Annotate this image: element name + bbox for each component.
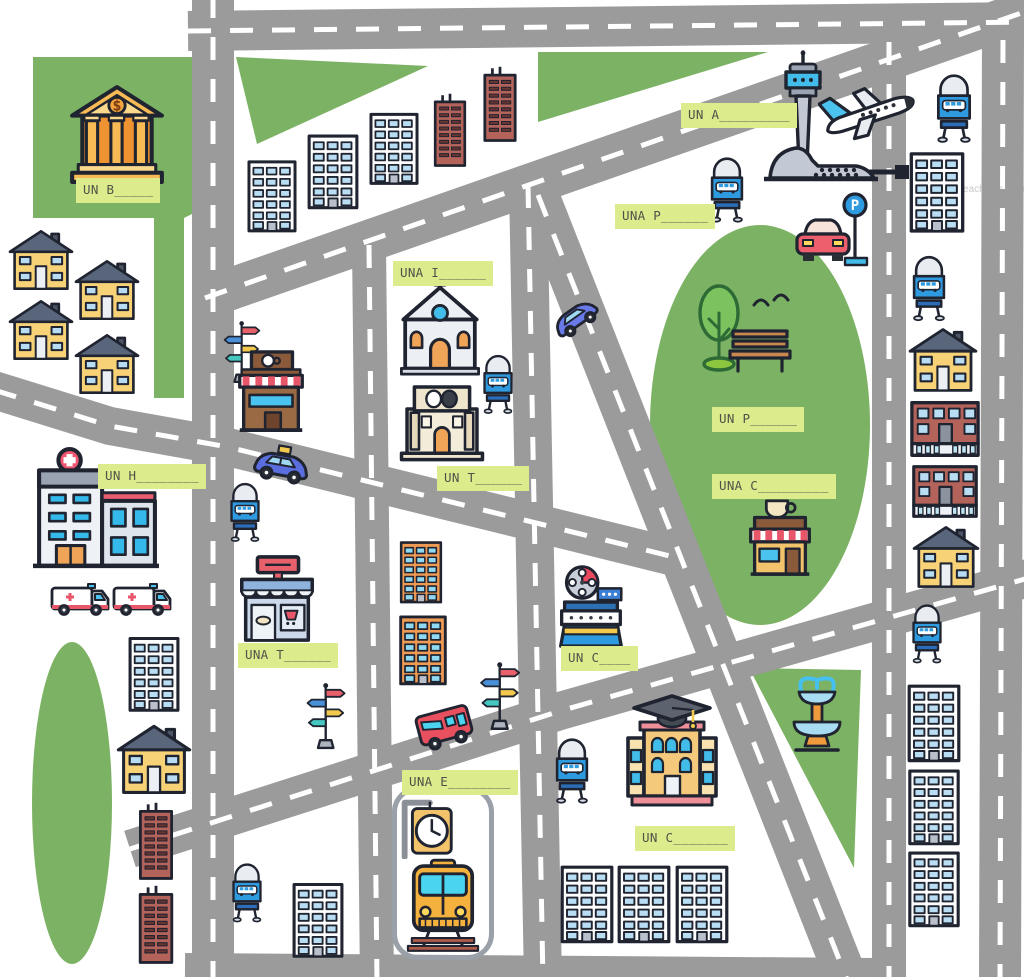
shop-icon xyxy=(235,554,319,646)
label-park: UN P______ xyxy=(712,407,804,432)
bus-stop-sign-icon xyxy=(908,250,950,324)
house-icon xyxy=(74,260,140,322)
label-school: UN C_______ xyxy=(635,826,735,851)
bench-icon xyxy=(728,326,792,374)
label-airport: UN A_________ xyxy=(681,103,797,128)
station-clock-icon xyxy=(396,793,456,859)
label-church: UNA I______ xyxy=(393,261,493,286)
label-theater: UN T______ xyxy=(437,466,529,491)
bus-stop-sign-icon xyxy=(931,70,977,144)
label-cinema: UN C____ xyxy=(561,646,638,671)
school-icon xyxy=(622,694,722,816)
apartment-building-icon xyxy=(127,634,181,714)
airplane-icon xyxy=(818,76,922,144)
brick-building-icon xyxy=(908,463,982,520)
ambulance-icon xyxy=(112,581,174,617)
bus-stop-sign-icon xyxy=(226,476,264,546)
ambulance-icon xyxy=(50,581,112,617)
coffee-shop-icon xyxy=(746,496,814,578)
parking-sign-icon xyxy=(793,192,871,274)
label-train-station: UNA E________ xyxy=(402,770,518,795)
city-map: $ xyxy=(0,0,1024,977)
brick-tower-icon xyxy=(135,802,177,880)
road-segment xyxy=(185,966,875,971)
label-hospital: UN H________ xyxy=(98,464,206,489)
label-shop: UNA T______ xyxy=(238,643,338,668)
apartment-building-icon xyxy=(906,768,962,846)
apartment-building-icon xyxy=(616,864,672,944)
house-icon xyxy=(908,328,978,394)
fountain-icon xyxy=(788,672,846,756)
label-bank: UN B_____ xyxy=(76,178,160,203)
bus-stop-sign-icon xyxy=(228,858,266,925)
apartment-building-icon xyxy=(393,540,449,604)
road-segment xyxy=(369,245,377,977)
bus-stop-sign-icon xyxy=(908,598,946,667)
park-ellipse-bottom-left xyxy=(32,642,112,964)
house-icon xyxy=(74,334,140,396)
cafe-icon xyxy=(234,350,308,434)
house-icon xyxy=(8,300,74,362)
house-icon xyxy=(116,722,192,799)
house-icon xyxy=(912,526,980,590)
apartment-building-icon xyxy=(674,864,730,944)
label-coffee-shop: UNA C_________ xyxy=(712,474,836,499)
apartment-building-icon xyxy=(368,110,420,187)
bus-stop-sign-icon xyxy=(479,346,517,420)
cinema-icon xyxy=(554,563,626,649)
apartment-building-icon xyxy=(246,158,298,234)
bus-stop-sign-icon xyxy=(551,731,593,808)
train-station-icon xyxy=(406,858,480,952)
street-signpost-icon xyxy=(300,680,350,750)
apartment-building-icon xyxy=(306,133,360,210)
road-segment xyxy=(188,22,1024,31)
brick-tower-icon xyxy=(480,66,520,142)
church-icon xyxy=(396,280,484,376)
birds-icon xyxy=(750,290,794,312)
brick-tower-icon xyxy=(430,93,470,167)
watermark: TeachThis.com xyxy=(958,184,1024,195)
bank-icon xyxy=(66,84,168,186)
apartment-building-icon xyxy=(395,614,451,686)
brick-building-icon xyxy=(908,398,982,460)
apartment-building-icon xyxy=(906,850,962,928)
street-signpost-icon xyxy=(476,643,522,747)
apartment-building-icon xyxy=(291,876,345,964)
apartment-building-icon xyxy=(908,150,966,234)
brick-tower-icon xyxy=(135,885,177,964)
apartment-building-icon xyxy=(906,683,962,763)
apartment-building-icon xyxy=(559,864,615,944)
house-icon xyxy=(8,230,74,292)
label-bus-stop: UNA P______ xyxy=(615,204,715,229)
theater-icon xyxy=(396,380,488,462)
